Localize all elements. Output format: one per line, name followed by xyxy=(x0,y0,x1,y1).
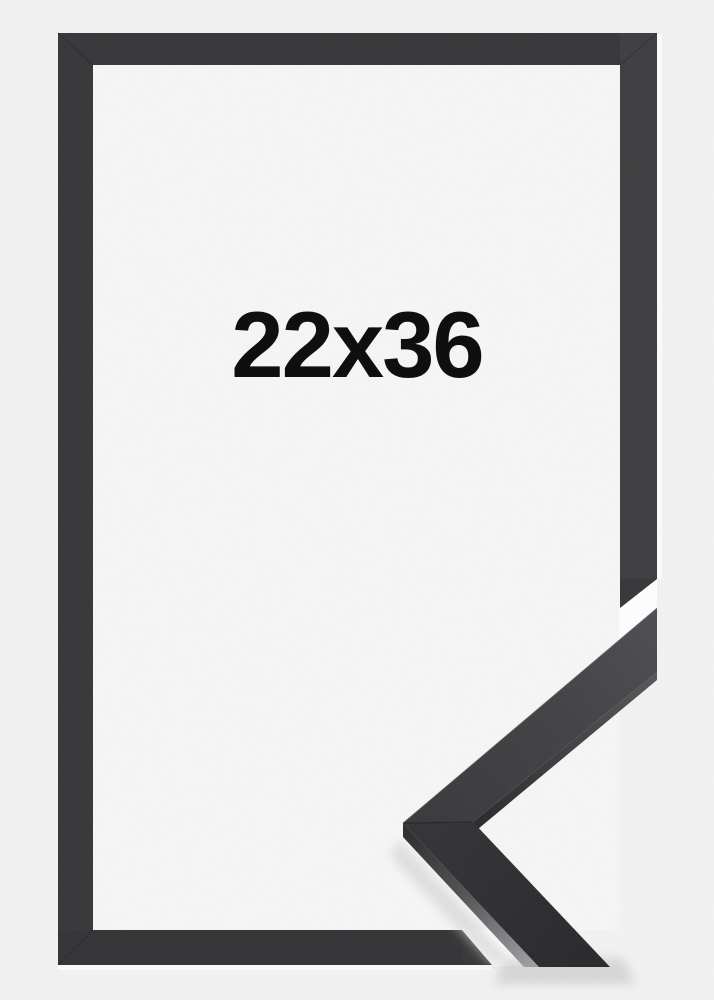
photo-grain xyxy=(0,0,714,1000)
size-label: 22x36 xyxy=(0,298,714,392)
frame-illustration xyxy=(0,0,714,1000)
product-photo: 22x36 xyxy=(0,0,714,1000)
